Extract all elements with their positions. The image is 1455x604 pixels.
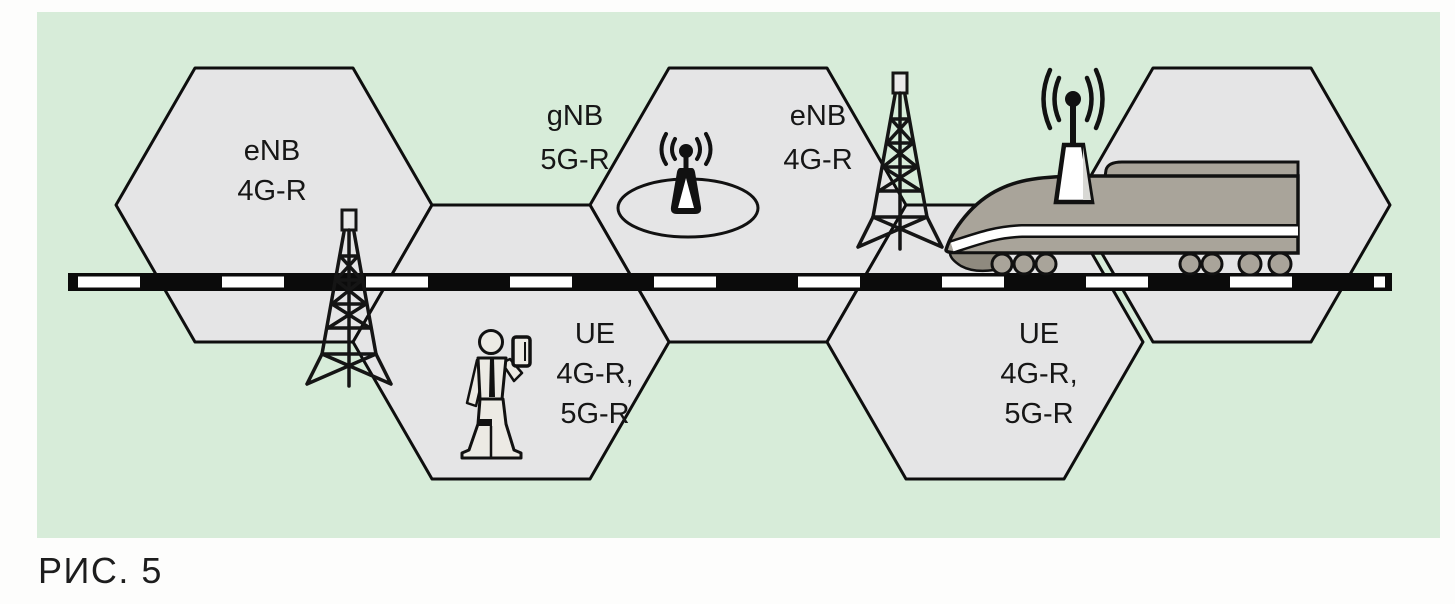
railway-track [68,273,1392,291]
label-gnb-line2: 5G-R [540,138,609,182]
label-gnb-line1: gNB [540,94,609,138]
label-ue-left: UE 4G-R, 5G-R [556,314,633,434]
label-ue-right-line3: 5G-R [1000,394,1077,434]
label-enb-right-line2: 4G-R [783,138,852,182]
label-enb-right: eNB 4G-R [783,94,852,182]
label-enb-left-line1: eNB [237,131,306,171]
label-ue-left-line3: 5G-R [556,394,633,434]
phone-icon [513,337,530,366]
label-enb-left-line2: 4G-R [237,171,306,211]
label-ue-left-line2: 4G-R, [556,354,633,394]
label-ue-right-line1: UE [1000,314,1077,354]
label-ue-right: UE 4G-R, 5G-R [1000,314,1077,434]
figure-caption: РИС. 5 [38,550,163,592]
label-gnb-small-cell: gNB 5G-R [540,94,609,182]
label-enb-right-line1: eNB [783,94,852,138]
label-ue-right-line2: 4G-R, [1000,354,1077,394]
network-diagram [0,0,1455,604]
label-enb-left: eNB 4G-R [237,131,306,211]
figure-page: eNB 4G-R gNB 5G-R eNB 4G-R UE 4G-R, 5G-R… [0,0,1455,604]
label-ue-left-line1: UE [556,314,633,354]
